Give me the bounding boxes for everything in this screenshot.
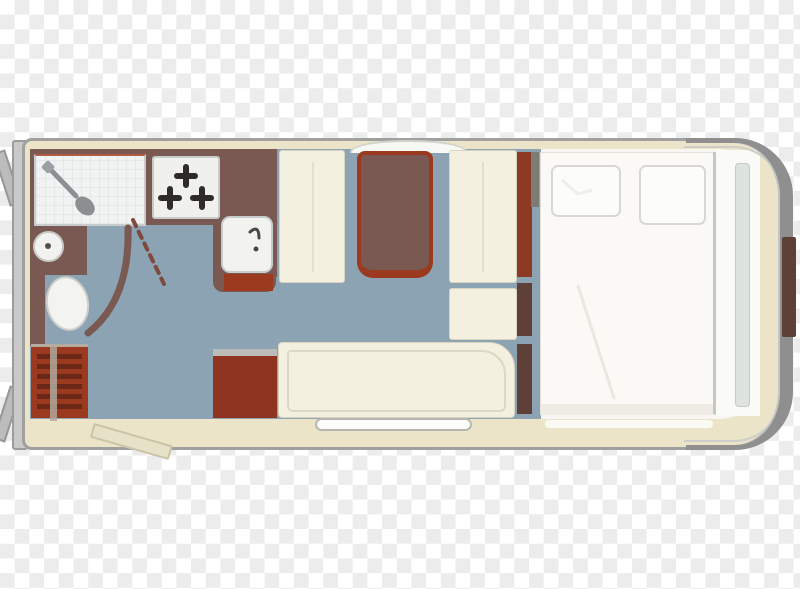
storage-cube [213,356,277,418]
worktop-ledge [224,274,273,291]
wardrobe-strip-mid [517,283,532,336]
hob-unit [152,156,220,219]
dinette-table [357,151,433,278]
sink-unit [221,216,273,273]
dinette-bench-right [449,150,517,283]
wardrobe-strip-upper [517,152,532,277]
shower-cubicle [34,154,146,226]
bathroom-left-wall [30,270,45,346]
side-cabinet [449,288,517,340]
cabinet-divider [50,347,57,421]
wardrobe-strip-lower [517,344,532,414]
drawer-slats [37,354,82,412]
drawer-cabinet [31,344,88,418]
front-locker [782,237,796,337]
dinette-bench-left [279,150,345,283]
washbasin [33,231,64,262]
l-sofa [278,342,515,418]
front-shell [686,138,793,450]
caravan-floorplan-canvas [0,0,800,589]
bedroom-partition [531,152,539,207]
pillow-left [551,165,621,217]
under-bed-door [545,420,713,428]
sofa-cushion-outline [287,350,506,412]
entry-door [315,418,472,431]
